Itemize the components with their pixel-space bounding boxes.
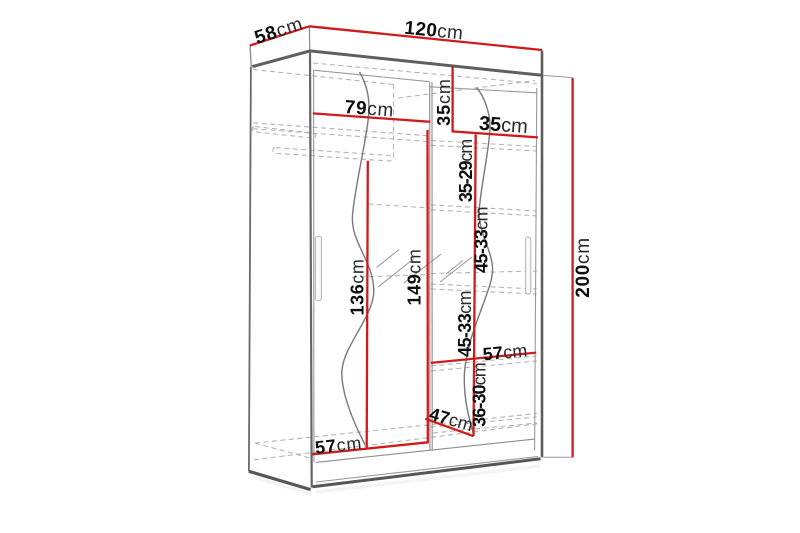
svg-text:47cm: 47cm (427, 404, 476, 436)
svg-text:79cm: 79cm (344, 97, 395, 121)
svg-text:45-33cm: 45-33cm (455, 291, 475, 357)
svg-text:57cm: 57cm (314, 433, 363, 458)
svg-text:35-29cm: 35-29cm (456, 140, 476, 202)
svg-text:149cm: 149cm (404, 248, 424, 305)
svg-text:35cm: 35cm (478, 113, 528, 138)
svg-text:57cm: 57cm (482, 340, 529, 364)
svg-text:35cm: 35cm (434, 78, 454, 126)
svg-text:58cm: 58cm (252, 14, 306, 49)
svg-text:200cm: 200cm (573, 237, 594, 298)
svg-text:136cm: 136cm (347, 258, 367, 315)
svg-text:120cm: 120cm (403, 18, 464, 45)
svg-text:45-33cm: 45-33cm (472, 207, 492, 273)
